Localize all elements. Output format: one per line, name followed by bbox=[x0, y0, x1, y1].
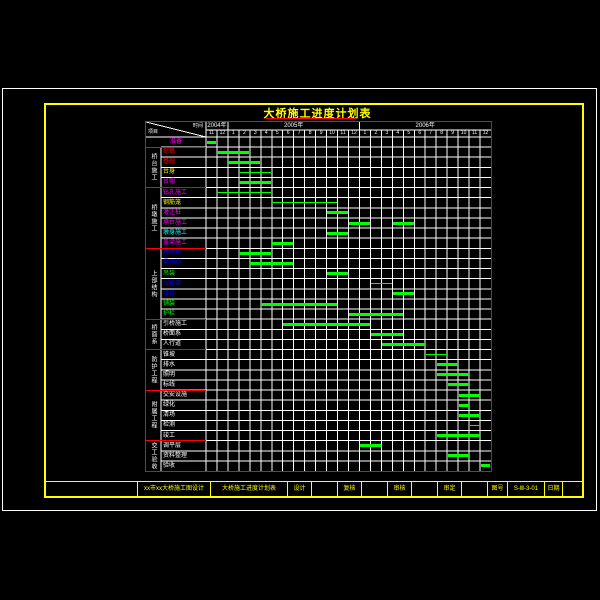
task-bar bbox=[239, 172, 271, 173]
task-label: 盖梁施工 bbox=[161, 238, 206, 248]
month-label: 1 bbox=[359, 130, 370, 137]
task-label: 吊装 bbox=[161, 269, 206, 279]
task-bar bbox=[371, 333, 403, 336]
month-label: 10 bbox=[327, 130, 338, 137]
task-label: 钻孔施工 bbox=[161, 188, 206, 198]
task-bar bbox=[393, 222, 414, 225]
task-bar bbox=[448, 383, 469, 386]
task-bar bbox=[217, 151, 249, 154]
task-label: 标线 bbox=[161, 380, 206, 390]
task-bar bbox=[459, 394, 480, 397]
task-label: 预制场 bbox=[161, 248, 206, 258]
figure-no-label-cell: 图号 bbox=[488, 482, 508, 497]
task-label: 引桥施工 bbox=[161, 319, 206, 329]
group-label: 桥墩施工 bbox=[146, 188, 161, 249]
year-label: 2004年 bbox=[206, 122, 228, 130]
drawing-name-cell: 大桥施工进度计划表 bbox=[211, 482, 288, 497]
month-label: 4 bbox=[392, 130, 403, 137]
task-label: 绿化 bbox=[161, 400, 206, 410]
task-bar bbox=[327, 211, 348, 214]
group-label: 桥面系 bbox=[146, 319, 161, 349]
month-label: 11 bbox=[206, 130, 217, 137]
task-bar bbox=[481, 464, 491, 467]
design-value-cell bbox=[312, 482, 338, 497]
review-label-cell: 审核 bbox=[388, 482, 412, 497]
task-label: 台帽 bbox=[161, 177, 206, 187]
task-label: 检测 bbox=[161, 420, 206, 430]
year-label: 2006年 bbox=[359, 122, 491, 130]
task-bar bbox=[327, 272, 348, 275]
task-bar bbox=[272, 202, 337, 203]
task-label: 铺装 bbox=[161, 299, 206, 309]
task-label: 挖基 bbox=[161, 147, 206, 157]
project-name-cell: xx市xx大桥施工图设计 bbox=[138, 482, 211, 497]
task-bar bbox=[272, 242, 293, 245]
group-separator bbox=[146, 390, 206, 391]
corner-project-label: 项目 bbox=[148, 130, 158, 135]
date-value-cell bbox=[563, 482, 582, 497]
task-bar bbox=[349, 313, 403, 316]
task-label: 交安设施 bbox=[161, 390, 206, 400]
task-label: 排水 bbox=[161, 360, 206, 370]
task-label: 清场 bbox=[161, 410, 206, 420]
approve-value-cell bbox=[462, 482, 488, 497]
month-label: 6 bbox=[414, 130, 425, 137]
task-bar bbox=[239, 181, 271, 184]
corner-time-label: 时间 bbox=[193, 124, 203, 129]
drawing-sheet: 大桥施工进度计划表 时间项目2004年11122005年123456789101… bbox=[0, 0, 600, 600]
task-label: 竣工 bbox=[161, 431, 206, 441]
month-label: 7 bbox=[425, 130, 436, 137]
approve-label-cell: 审定 bbox=[438, 482, 462, 497]
check-value-cell bbox=[362, 482, 388, 497]
task-bar bbox=[393, 292, 414, 295]
month-label: 8 bbox=[436, 130, 447, 137]
task-label: 锥坡 bbox=[161, 350, 206, 360]
group-separator bbox=[146, 349, 206, 350]
group-separator bbox=[146, 319, 206, 320]
month-label: 11 bbox=[469, 130, 480, 137]
month-label: 10 bbox=[458, 130, 469, 137]
month-label: 12 bbox=[217, 130, 228, 137]
task-bar bbox=[437, 434, 480, 437]
task-bar bbox=[239, 252, 271, 255]
month-label: 3 bbox=[250, 130, 261, 137]
task-label: 资料整理 bbox=[161, 451, 206, 461]
month-label: 3 bbox=[381, 130, 392, 137]
month-label: 1 bbox=[228, 130, 239, 137]
check-label-cell: 复核 bbox=[338, 482, 362, 497]
year-label: 2005年 bbox=[228, 122, 360, 130]
month-label: 8 bbox=[305, 130, 316, 137]
group-label: 桥台施工 bbox=[146, 147, 161, 187]
review-value-cell bbox=[412, 482, 438, 497]
task-label: 湿接缝 bbox=[161, 279, 206, 289]
task-bar bbox=[382, 343, 425, 346]
task-bar bbox=[459, 414, 480, 417]
title-underline bbox=[266, 118, 356, 119]
task-bar bbox=[437, 373, 469, 376]
month-label: 9 bbox=[447, 130, 458, 137]
task-bar bbox=[371, 283, 392, 284]
group-label: 交工验收 bbox=[146, 441, 161, 471]
group-separator bbox=[146, 248, 206, 249]
task-bar bbox=[217, 192, 271, 193]
task-bar bbox=[250, 262, 293, 265]
task-bar bbox=[283, 323, 370, 326]
month-label: 5 bbox=[272, 130, 283, 137]
task-label: 张拉 bbox=[161, 289, 206, 299]
blank-cell bbox=[46, 482, 138, 497]
month-label: 2 bbox=[239, 130, 250, 137]
task-label: 基础 bbox=[161, 157, 206, 167]
group-separator bbox=[146, 147, 206, 148]
task-label: 护栏 bbox=[161, 309, 206, 319]
month-label: 9 bbox=[316, 130, 327, 137]
title-block: xx市xx大桥施工图设计大桥施工进度计划表设计复核审核审定图号S-Ⅲ-3-01日… bbox=[46, 481, 582, 497]
task-bar bbox=[437, 363, 458, 366]
date-label-cell: 日期 bbox=[545, 482, 563, 497]
task-label: 调平层 bbox=[161, 441, 206, 451]
task-bar bbox=[327, 232, 348, 235]
month-label: 2 bbox=[370, 130, 381, 137]
month-label: 11 bbox=[338, 130, 349, 137]
task-label: 人行道 bbox=[161, 339, 206, 349]
task-bar bbox=[228, 161, 260, 164]
task-bar bbox=[360, 444, 381, 447]
figure-number-cell: S-Ⅲ-3-01 bbox=[508, 482, 545, 497]
month-label: 6 bbox=[283, 130, 294, 137]
task-label: 验收 bbox=[161, 461, 206, 471]
task-label: 准备 bbox=[146, 137, 206, 147]
group-label: 防护工程 bbox=[146, 350, 161, 390]
task-bar bbox=[448, 454, 469, 457]
task-label: 台身 bbox=[161, 167, 206, 177]
month-label: 4 bbox=[261, 130, 272, 137]
schedule-gantt-table: 时间项目2004年11122005年1234567891011122006年12… bbox=[145, 121, 492, 472]
month-label: 12 bbox=[480, 130, 491, 137]
task-bar bbox=[470, 425, 480, 426]
task-label: 照明 bbox=[161, 370, 206, 380]
task-bar bbox=[261, 303, 337, 306]
group-separator bbox=[146, 440, 206, 441]
task-label: 钢筋笼 bbox=[161, 198, 206, 208]
group-label: 附属工程 bbox=[146, 390, 161, 441]
group-label: 上部结构 bbox=[146, 248, 161, 319]
task-label: 承台施工 bbox=[161, 218, 206, 228]
design-label-cell: 设计 bbox=[288, 482, 312, 497]
month-label: 12 bbox=[349, 130, 360, 137]
task-label: 灌注桩 bbox=[161, 208, 206, 218]
task-bar bbox=[207, 141, 217, 144]
task-bar bbox=[349, 222, 370, 225]
month-label: 7 bbox=[294, 130, 305, 137]
task-label: 梁预制 bbox=[161, 258, 206, 268]
task-label: 桥面系 bbox=[161, 329, 206, 339]
task-label: 墩身施工 bbox=[161, 228, 206, 238]
task-bar bbox=[426, 354, 447, 355]
month-label: 5 bbox=[403, 130, 414, 137]
group-separator bbox=[146, 187, 206, 188]
task-bar bbox=[459, 404, 469, 407]
